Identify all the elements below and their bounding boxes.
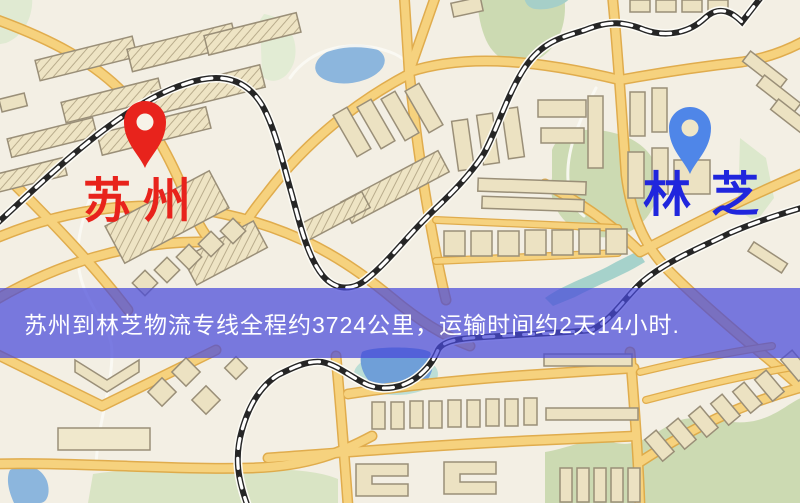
route-info-banner: 苏州到林芝物流专线全程约3724公里，运输时间约2天14小时. (0, 288, 800, 358)
map-canvas (0, 0, 800, 503)
origin-label: 苏州 (83, 178, 203, 226)
map-view: 苏州 林芝 苏州到林芝物流专线全程约3724公里，运输时间约2天14小时. (0, 0, 800, 503)
route-info-text: 苏州到林芝物流专线全程约3724公里，运输时间约2天14小时. (0, 306, 680, 340)
destination-label: 林芝 (643, 172, 779, 220)
